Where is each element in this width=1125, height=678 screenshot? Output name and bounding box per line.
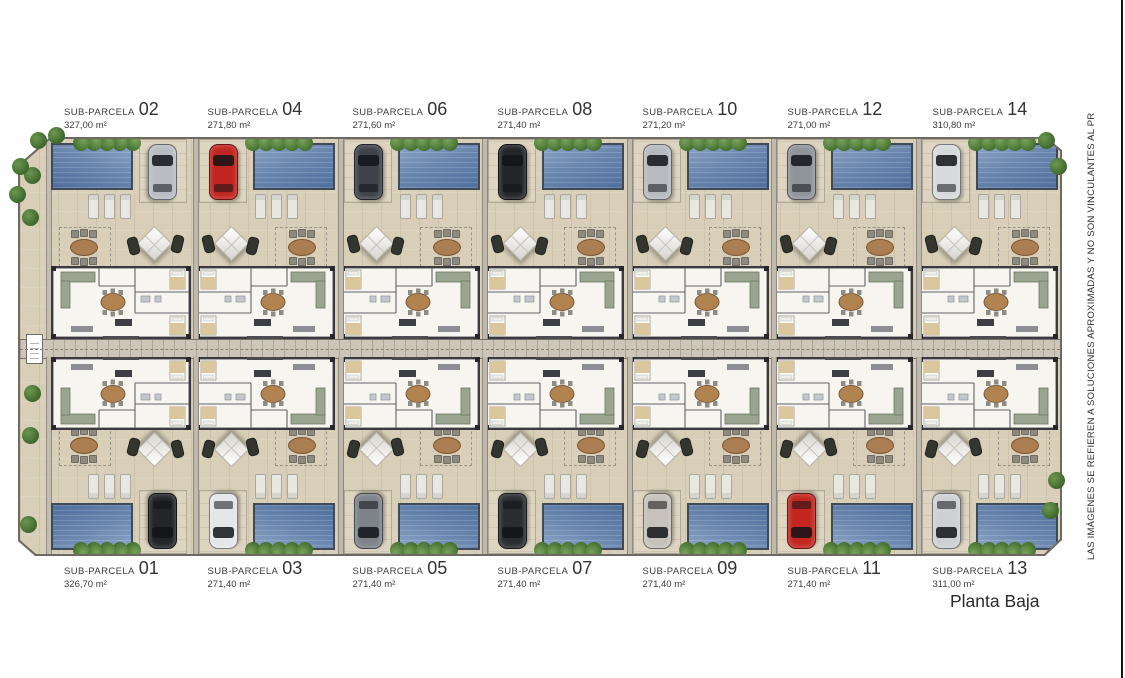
parcel-label-02: SUB-PARCELA02327,00 m²	[64, 100, 182, 131]
parcel-label-04: SUB-PARCELA04271,80 m²	[208, 100, 326, 131]
lounger-icon	[416, 194, 427, 219]
villa-floorplan	[195, 266, 335, 339]
parcel-number: 09	[717, 559, 737, 577]
parcel-label-text: SUB-PARCELA	[643, 566, 714, 577]
parcel-content	[482, 139, 626, 339]
umbrella-icon	[647, 432, 682, 467]
parcel-number: 02	[139, 100, 159, 118]
chair-icon	[1030, 230, 1038, 238]
sun-loungers	[400, 474, 443, 499]
lounger-icon	[994, 194, 1005, 219]
lounger-icon	[1010, 194, 1021, 219]
parcel-area: 271,40 m²	[498, 579, 616, 590]
lounger-icon	[400, 474, 411, 499]
parcel-content	[48, 139, 193, 339]
lounger-icon	[689, 194, 700, 219]
bush-icon	[586, 139, 602, 151]
chair-icon	[876, 456, 884, 464]
lounger-icon	[104, 194, 115, 219]
lounger-icon	[88, 194, 99, 219]
villa-floorplan	[340, 357, 480, 430]
umbrella-area	[127, 428, 183, 468]
lounger-icon	[1010, 474, 1021, 499]
bathroom-fixture-icon	[948, 296, 954, 302]
lounger-icon	[287, 474, 298, 499]
lounger-icon	[865, 194, 876, 219]
lounger-icon	[978, 194, 989, 219]
chair-icon	[1030, 257, 1038, 265]
parcel-label-05: SUB-PARCELA05271,40 m²	[353, 559, 471, 590]
chair-icon	[732, 229, 740, 237]
lounger-icon	[576, 194, 587, 219]
parcel-04	[193, 139, 337, 339]
dining-table-icon	[1011, 239, 1039, 256]
chair-icon	[80, 258, 88, 266]
chair-icon	[534, 236, 549, 256]
bed-icon	[346, 361, 361, 380]
kitchen-counter-icon	[399, 370, 416, 377]
outdoor-dining-terrace	[564, 426, 616, 466]
kitchen-counter-icon	[543, 319, 560, 326]
bush-icon	[1020, 139, 1036, 151]
lounger-icon	[865, 474, 876, 499]
dining-table-icon	[722, 437, 750, 454]
porch-icon	[247, 357, 283, 360]
chair-icon	[452, 230, 460, 238]
chair-icon	[867, 257, 875, 265]
villa-floorplan	[484, 266, 624, 339]
chair-icon	[679, 437, 694, 457]
parcel-label-text: SUB-PARCELA	[64, 566, 135, 577]
chair-icon	[968, 236, 983, 256]
lounger-icon	[833, 474, 844, 499]
tv-cabinet-icon	[871, 326, 893, 332]
parcel-label-07: SUB-PARCELA07271,40 m²	[498, 559, 616, 590]
porch-icon	[825, 357, 861, 360]
hedge-row	[682, 139, 771, 151]
umbrella-icon	[503, 432, 538, 467]
umbrella-icon	[792, 432, 827, 467]
bathroom-fixture-icon	[803, 394, 809, 400]
sun-loungers	[544, 194, 587, 219]
lounger-icon	[576, 474, 587, 499]
bathroom-fixture-icon	[959, 296, 968, 302]
lounger-icon	[544, 474, 555, 499]
bed-icon	[635, 270, 650, 289]
outdoor-dining-terrace	[59, 426, 111, 466]
chair-icon	[1012, 230, 1020, 238]
chair-icon	[867, 455, 875, 463]
parcel-content	[771, 139, 915, 339]
bathroom-fixture-icon	[525, 394, 534, 400]
chair-icon	[452, 455, 460, 463]
tree-icon	[1050, 158, 1067, 175]
chair-icon	[443, 229, 451, 237]
site-ground	[20, 139, 1060, 554]
hedge-row	[48, 542, 138, 554]
parcel-number: 06	[427, 100, 447, 118]
lounger-icon	[994, 474, 1005, 499]
lounger-icon	[560, 194, 571, 219]
parcel-content	[916, 139, 1060, 339]
chair-icon	[443, 456, 451, 464]
bed-icon	[779, 407, 794, 426]
indoor-dining-icon	[261, 380, 285, 408]
tree-icon	[22, 427, 39, 444]
bush-icon	[1020, 542, 1036, 554]
chair-icon	[434, 230, 442, 238]
chair-icon	[298, 456, 306, 464]
bathroom-fixture-icon	[514, 394, 520, 400]
hedge-row	[537, 542, 626, 554]
tree-icon	[30, 132, 47, 149]
bathroom-fixture-icon	[370, 394, 376, 400]
car-icon	[498, 144, 527, 200]
outdoor-dining-terrace	[59, 227, 111, 267]
sun-loungers	[978, 194, 1021, 219]
villa-floorplan	[918, 357, 1058, 430]
parcel-content	[193, 357, 337, 554]
indoor-dining-icon	[984, 380, 1008, 408]
tv-cabinet-icon	[293, 326, 315, 332]
car-icon	[787, 493, 816, 549]
tv-cabinet-icon	[71, 326, 93, 332]
dining-table-icon	[577, 239, 605, 256]
chair-icon	[823, 437, 838, 457]
kitchen-counter-icon	[832, 370, 849, 377]
umbrella-icon	[936, 432, 971, 467]
tree-icon	[1048, 472, 1065, 489]
sun-loungers	[88, 194, 131, 219]
parcel-content	[482, 357, 626, 554]
sun-loungers	[255, 474, 298, 499]
bush-icon	[875, 542, 891, 554]
villa-floorplan	[51, 266, 191, 339]
umbrella-area	[637, 225, 693, 265]
umbrella-area	[348, 225, 404, 265]
outdoor-dining-terrace	[420, 227, 472, 267]
bathroom-fixture-icon	[959, 394, 968, 400]
bathroom-fixture-icon	[141, 296, 150, 302]
outdoor-dining-terrace	[709, 426, 761, 466]
dining-table-icon	[1011, 437, 1039, 454]
indoor-dining-icon	[261, 289, 285, 317]
chair-icon	[578, 455, 586, 463]
car-icon	[643, 493, 672, 549]
chair-icon	[452, 257, 460, 265]
parcel-label-text: SUB-PARCELA	[788, 566, 859, 577]
site-plan	[18, 137, 1062, 556]
car-icon	[148, 144, 177, 200]
chair-icon	[723, 230, 731, 238]
kitchen-counter-icon	[543, 370, 560, 377]
dining-table-icon	[722, 239, 750, 256]
indoor-dining-icon	[695, 289, 719, 317]
chair-icon	[289, 257, 297, 265]
lounger-icon	[705, 194, 716, 219]
villa-floorplan	[195, 357, 335, 430]
bed-icon	[170, 407, 185, 426]
parcel-08	[482, 139, 626, 339]
parcel-number: 04	[282, 100, 302, 118]
parcel-content	[338, 357, 482, 554]
villa-floorplan	[773, 266, 913, 339]
umbrella-area	[926, 225, 982, 265]
chair-icon	[245, 236, 260, 256]
chair-icon	[307, 230, 315, 238]
parcel-label-10: SUB-PARCELA10271,20 m²	[643, 100, 761, 131]
chair-icon	[126, 236, 141, 256]
bed-icon	[201, 316, 216, 335]
lounger-icon	[255, 474, 266, 499]
chair-icon	[434, 455, 442, 463]
villa-floorplan	[629, 266, 769, 339]
parcel-label-text: SUB-PARCELA	[933, 566, 1004, 577]
lounger-icon	[271, 194, 282, 219]
hedge-row	[682, 542, 771, 554]
umbrella-area	[203, 225, 259, 265]
tv-cabinet-icon	[727, 326, 749, 332]
bed-icon	[635, 361, 650, 380]
parcel-label-text: SUB-PARCELA	[788, 107, 859, 118]
parcel-label-text: SUB-PARCELA	[353, 566, 424, 577]
lounger-icon	[287, 194, 298, 219]
parcel-content	[627, 139, 771, 339]
parcel-label-01: SUB-PARCELA01326,70 m²	[64, 559, 182, 590]
parcel-10	[627, 139, 771, 339]
villa-floorplan	[484, 357, 624, 430]
bed-icon	[201, 407, 216, 426]
bush-icon	[586, 542, 602, 554]
umbrella-icon	[137, 432, 172, 467]
chair-icon	[534, 437, 549, 457]
bed-icon	[346, 270, 361, 289]
parcel-area: 271,40 m²	[353, 579, 471, 590]
bush-icon	[73, 139, 89, 151]
parcel-content	[627, 357, 771, 554]
kitchen-counter-icon	[254, 370, 271, 377]
parcel-area: 271,00 m²	[788, 120, 906, 131]
lounger-icon	[849, 474, 860, 499]
chair-icon	[596, 257, 604, 265]
car-icon	[209, 493, 238, 549]
parcel-number: 12	[862, 100, 882, 118]
bed-icon	[490, 270, 505, 289]
umbrella-icon	[359, 226, 394, 261]
chair-icon	[578, 257, 586, 265]
parcel-area: 327,00 m²	[64, 120, 182, 131]
indoor-dining-icon	[984, 289, 1008, 317]
porch-icon	[536, 357, 572, 360]
outdoor-dining-terrace	[275, 227, 327, 267]
outdoor-dining-terrace	[420, 426, 472, 466]
lounger-icon	[705, 474, 716, 499]
bed-icon	[490, 316, 505, 335]
chair-icon	[679, 236, 694, 256]
bed-icon	[924, 407, 939, 426]
chair-icon	[885, 257, 893, 265]
lounger-icon	[104, 474, 115, 499]
villa-floorplan	[773, 357, 913, 430]
bathroom-fixture-icon	[381, 394, 390, 400]
bed-icon	[490, 361, 505, 380]
car-icon	[932, 493, 961, 549]
parcel-12	[771, 139, 915, 339]
parcel-label-13: SUB-PARCELA13311,00 m²	[933, 559, 1051, 590]
bathroom-fixture-icon	[155, 296, 161, 302]
parcel-label-06: SUB-PARCELA06271,60 m²	[353, 100, 471, 131]
indoor-dining-icon	[406, 380, 430, 408]
chair-icon	[1012, 455, 1020, 463]
outdoor-dining-terrace	[853, 227, 905, 267]
parcel-label-text: SUB-PARCELA	[643, 107, 714, 118]
bed-icon	[779, 270, 794, 289]
dining-table-icon	[577, 437, 605, 454]
tv-cabinet-icon	[293, 364, 315, 370]
parcel-06	[338, 139, 482, 339]
outdoor-dining-terrace	[709, 227, 761, 267]
chair-icon	[741, 455, 749, 463]
indoor-dining-icon	[695, 380, 719, 408]
parcel-content	[193, 139, 337, 339]
chair-icon	[723, 257, 731, 265]
parcel-01	[20, 357, 193, 554]
lounger-icon	[120, 194, 131, 219]
bush-icon	[442, 139, 458, 151]
porch-icon	[536, 336, 572, 339]
disclaimer-text: LAS IMÁGENES SE REFIEREN A SOLUCIONES AP…	[1086, 0, 1106, 560]
bed-icon	[346, 407, 361, 426]
kitchen-counter-icon	[977, 370, 994, 377]
bed-icon	[779, 316, 794, 335]
sun-loungers	[833, 474, 876, 499]
plan-title: Planta Baja	[950, 591, 1040, 612]
tree-icon	[1042, 502, 1059, 519]
parcel-content	[916, 357, 1060, 554]
bed-icon	[924, 270, 939, 289]
car-icon	[209, 144, 238, 200]
parcel-number: 10	[717, 100, 737, 118]
bed-icon	[170, 316, 185, 335]
chair-icon	[885, 455, 893, 463]
chair-icon	[71, 230, 79, 238]
bush-icon	[297, 542, 313, 554]
indoor-dining-icon	[839, 289, 863, 317]
bathroom-fixture-icon	[670, 394, 679, 400]
parcel-03	[193, 357, 337, 554]
lounger-icon	[432, 474, 443, 499]
chair-icon	[298, 229, 306, 237]
parcel-02	[20, 139, 193, 339]
bed-icon	[779, 361, 794, 380]
parcel-number: 05	[427, 559, 447, 577]
umbrella-icon	[359, 432, 394, 467]
umbrella-area	[637, 428, 693, 468]
parcel-label-text: SUB-PARCELA	[353, 107, 424, 118]
chair-icon	[390, 437, 405, 457]
chair-icon	[578, 230, 586, 238]
outdoor-dining-terrace	[853, 426, 905, 466]
bathroom-fixture-icon	[381, 296, 390, 302]
car-icon	[932, 144, 961, 200]
chair-icon	[587, 456, 595, 464]
parcel-number: 03	[282, 559, 302, 577]
hedge-row	[826, 139, 915, 151]
sun-loungers	[978, 474, 1021, 499]
tree-icon	[48, 127, 65, 144]
chair-icon	[390, 236, 405, 256]
bed-icon	[201, 270, 216, 289]
chair-icon	[434, 257, 442, 265]
hedge-row	[248, 542, 337, 554]
hedge-row	[248, 139, 337, 151]
porch-icon	[392, 357, 428, 360]
umbrella-area	[127, 225, 183, 265]
bush-icon	[73, 542, 89, 554]
umbrella-area	[492, 225, 548, 265]
chair-icon	[867, 230, 875, 238]
bush-icon	[731, 139, 747, 151]
bathroom-fixture-icon	[236, 394, 245, 400]
lounger-icon	[271, 474, 282, 499]
umbrella-icon	[214, 432, 249, 467]
tree-icon	[9, 186, 26, 203]
parcel-row-bottom	[20, 357, 1060, 554]
kitchen-counter-icon	[115, 370, 132, 377]
lounger-icon	[432, 194, 443, 219]
bed-icon	[924, 361, 939, 380]
bathroom-fixture-icon	[948, 394, 954, 400]
parcel-05	[338, 357, 482, 554]
tree-icon	[12, 158, 29, 175]
parcel-label-text: SUB-PARCELA	[498, 566, 569, 577]
car-icon	[354, 144, 383, 200]
bed-icon	[635, 316, 650, 335]
parcel-area: 271,80 m²	[208, 120, 326, 131]
dining-table-icon	[70, 437, 98, 454]
bed-icon	[170, 361, 185, 380]
chair-icon	[885, 230, 893, 238]
tv-cabinet-icon	[582, 364, 604, 370]
parcel-area: 271,20 m²	[643, 120, 761, 131]
bathroom-fixture-icon	[370, 296, 376, 302]
sun-loungers	[255, 194, 298, 219]
chair-icon	[587, 229, 595, 237]
porch-icon	[392, 336, 428, 339]
lounger-icon	[255, 194, 266, 219]
parcel-number: 07	[572, 559, 592, 577]
chair-icon	[289, 455, 297, 463]
outdoor-dining-terrace	[275, 426, 327, 466]
tree-icon	[1038, 132, 1055, 149]
lounger-icon	[833, 194, 844, 219]
lounger-icon	[400, 194, 411, 219]
chair-icon	[89, 257, 97, 265]
sun-loungers	[400, 194, 443, 219]
chair-icon	[170, 234, 185, 254]
hedge-row	[826, 542, 915, 554]
bathroom-fixture-icon	[236, 296, 245, 302]
parcel-09	[627, 357, 771, 554]
lounger-icon	[416, 474, 427, 499]
bathroom-fixture-icon	[141, 394, 150, 400]
umbrella-icon	[936, 226, 971, 261]
parcel-number: 01	[139, 559, 159, 577]
parcel-label-09: SUB-PARCELA09271,40 m²	[643, 559, 761, 590]
lounger-icon	[88, 474, 99, 499]
porch-icon	[681, 336, 717, 339]
chair-icon	[596, 230, 604, 238]
